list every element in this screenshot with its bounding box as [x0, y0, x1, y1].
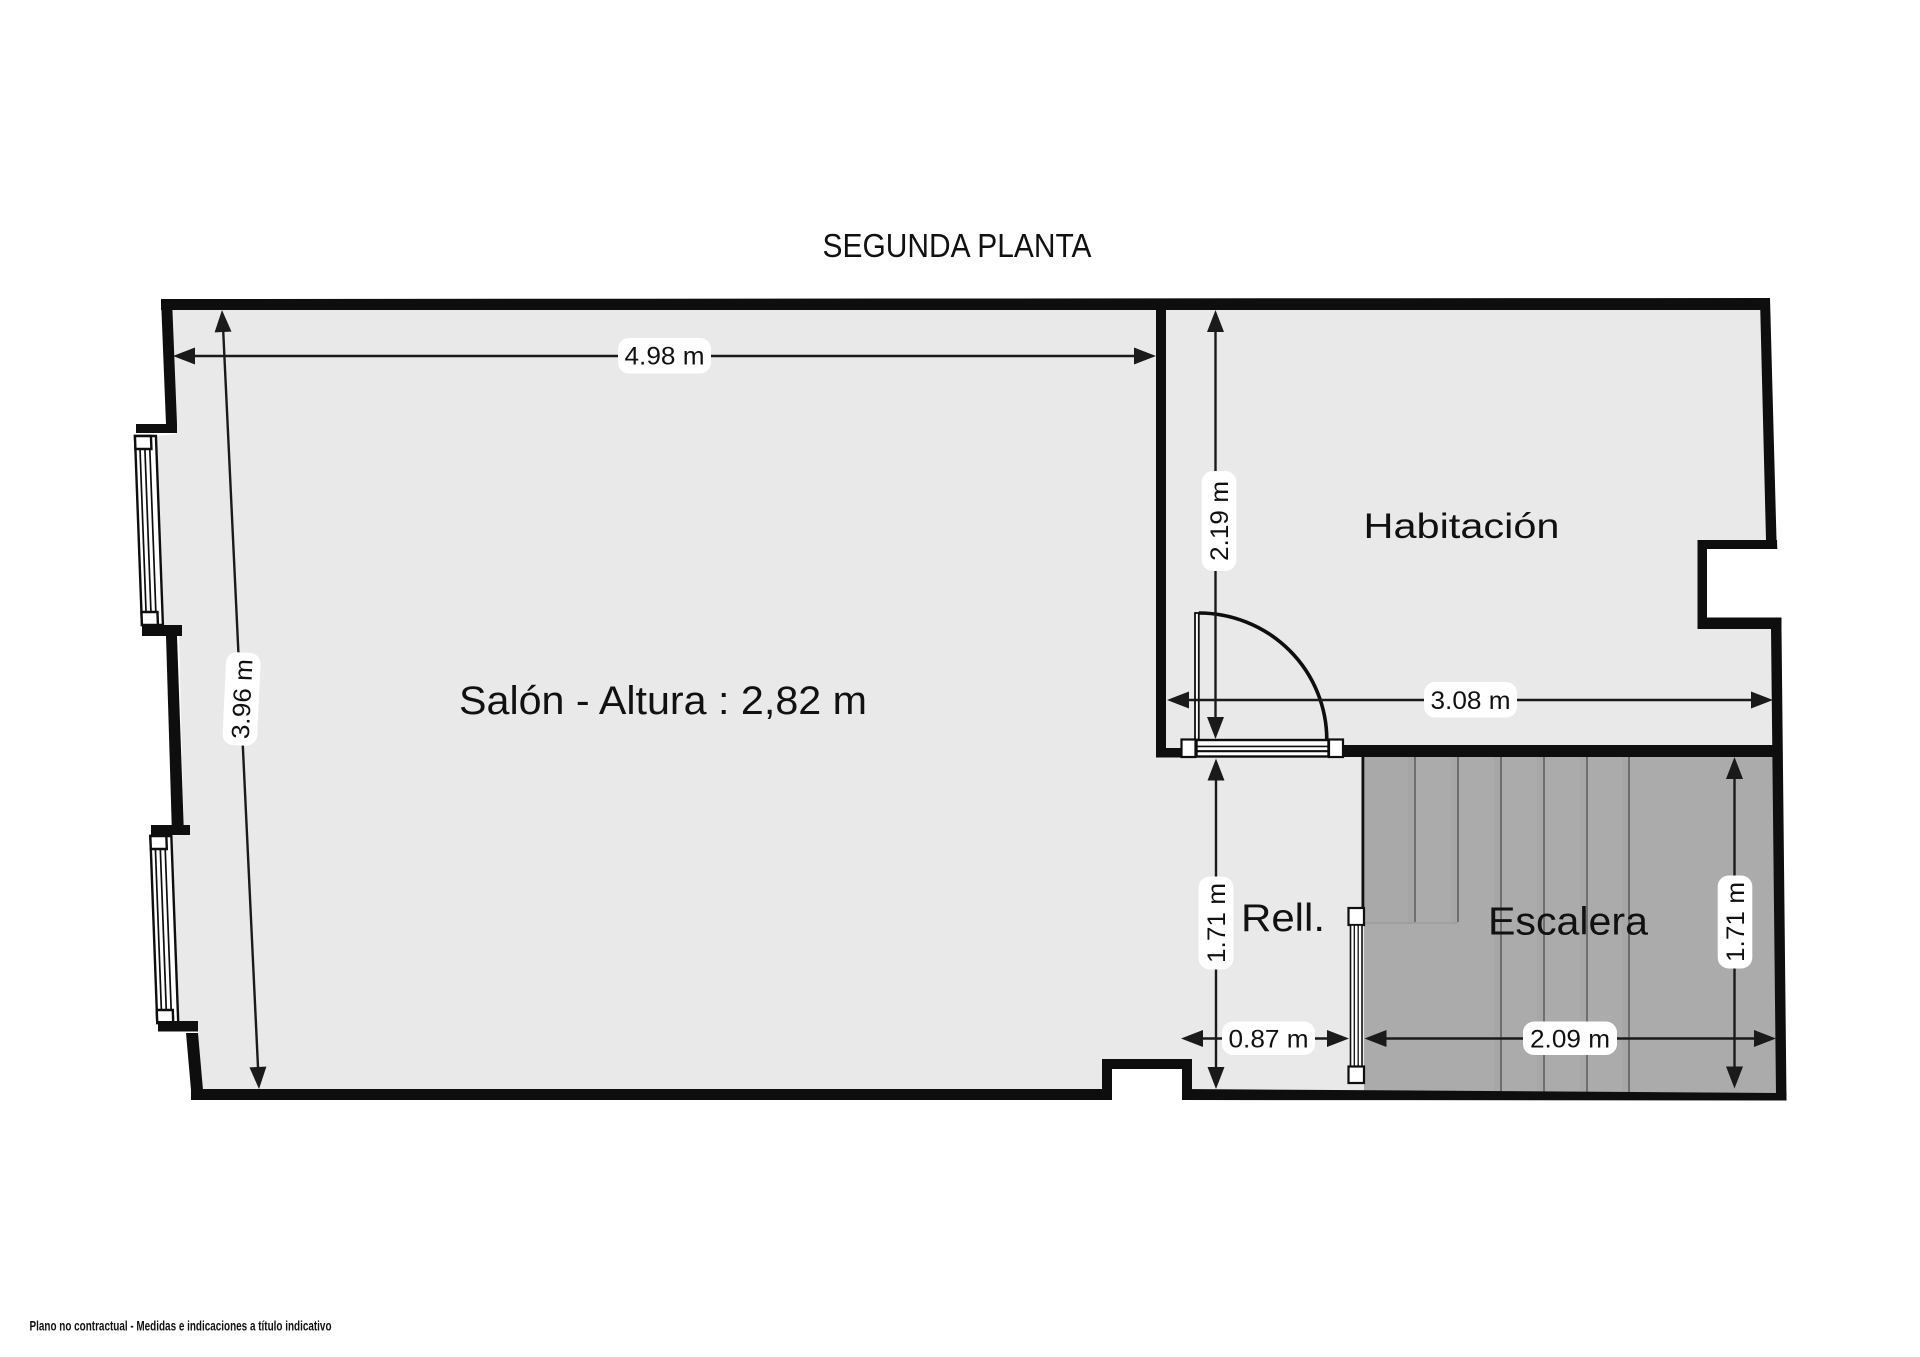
svg-text:Plano no contractual - Medidas: Plano no contractual - Medidas e indicac…	[30, 1318, 332, 1334]
svg-text:3.08 m: 3.08 m	[1431, 687, 1511, 715]
svg-text:1.71 m: 1.71 m	[1722, 882, 1750, 962]
svg-text:1.71 m: 1.71 m	[1203, 883, 1231, 963]
svg-text:Salón - Altura : 2,82 m: Salón - Altura : 2,82 m	[459, 679, 867, 723]
svg-text:Habitación: Habitación	[1364, 507, 1560, 546]
svg-text:3.96 m: 3.96 m	[227, 658, 259, 739]
svg-text:4.98 m: 4.98 m	[625, 343, 705, 371]
svg-text:0.87 m: 0.87 m	[1229, 1026, 1309, 1054]
svg-text:2.09 m: 2.09 m	[1530, 1026, 1610, 1054]
svg-text:SEGUNDA PLANTA: SEGUNDA PLANTA	[823, 227, 1092, 264]
svg-text:2.19 m: 2.19 m	[1206, 481, 1234, 561]
svg-text:Escalera: Escalera	[1488, 901, 1648, 944]
svg-text:Rell.: Rell.	[1241, 897, 1325, 940]
